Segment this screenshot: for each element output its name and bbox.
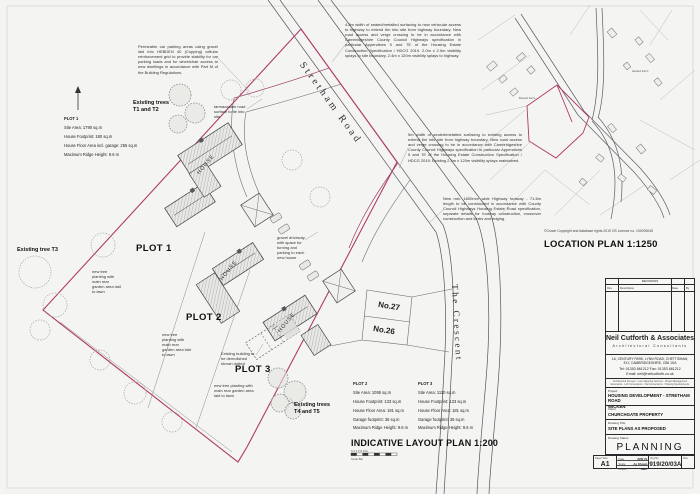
services-line-2: Extensions · Loft Conversions · Flat Con… — [606, 383, 694, 386]
address-section: 1A, CENTURY PARK, LYNN ROAD, CHETTISHAM,… — [606, 354, 694, 378]
drg-no-value: 919/20/03A — [649, 461, 681, 468]
drawing-title-section: Drawing Title SITE PLANS AS PROPOSED — [606, 419, 694, 434]
address-line-1: 1A, CENTURY PARK, LYNN ROAD, CHETTISHAM, — [606, 357, 694, 361]
label-trees-t4-t5: Existing trees T4 and T5 — [294, 402, 332, 415]
location-site-outline — [527, 85, 589, 158]
note-tree-planting-1: new tree planting with main rear garden … — [92, 269, 122, 295]
paper-size-cell: Paper Size A1 — [594, 456, 617, 468]
note-gravel-driveway: gravel driveway with space for turning a… — [277, 235, 307, 261]
note-new-access: 4.8m width of sealed/metalled surfacing … — [345, 22, 461, 58]
label-trees-t1-t2: Existing trees T1 and T2 — [133, 100, 177, 113]
client-label: Client — [608, 407, 616, 411]
revisions-columns: Rev Description Date By — [606, 285, 694, 292]
paper-size-value: A1 — [594, 461, 616, 468]
north-arrow-icon — [75, 86, 81, 110]
drawn-value: NMC — [641, 467, 648, 471]
plot1-house — [164, 121, 243, 227]
location-plan-title: LOCATION PLAN 1:1250 — [544, 239, 658, 250]
label-farm-2: Hazard Farm — [632, 69, 648, 73]
note-tree-planting-2: new tree planting with main rear garden … — [162, 332, 192, 358]
rev-cell: Rev — [682, 456, 694, 468]
company-section: Neil Cutforth & Associates Architectural… — [606, 331, 694, 354]
date-scale-drawn-cell: DateAPR 21 ScaleAs Shown DrawnNMC — [617, 456, 649, 468]
drawing-sheet: Permeable car parking areas using gravel… — [0, 0, 700, 494]
plot1-garage — [241, 193, 274, 227]
neighbour-plot — [330, 289, 452, 352]
project-label: Project — [608, 389, 617, 393]
note-permeable-parking: Permeable car parking areas using gravel… — [138, 44, 218, 75]
scale-bar — [351, 453, 397, 456]
indicative-plan-title: INDICATIVE LAYOUT PLAN 1:200 — [351, 438, 498, 448]
label-plot-1: PLOT 1 — [136, 243, 172, 254]
drawing-status-section: Drawing Status PLANNING — [606, 434, 694, 456]
company-email: Email: neil@neilcutforth.co.uk — [606, 372, 694, 376]
revisions-table: REVISIONS Rev Description Date By — [606, 279, 694, 331]
note-tree-planting-3: new tree planting with main rear garden … — [214, 383, 254, 398]
scale-bar-label: Scale Bar — [351, 457, 363, 461]
company-tel: Tel: 01353 661212 Fax: 01353 661212 — [606, 367, 694, 371]
label-tree-t3: Existing tree T3 — [17, 247, 77, 254]
project-section: Project HOUSING DEVELOPMENT - STRETHAM R… — [606, 387, 694, 405]
company-name: Neil Cutforth & Associates — [606, 335, 694, 342]
note-footway: New min. 1800mm wide Highway footway - 7… — [443, 196, 541, 222]
scale-value: As Shown — [633, 462, 647, 466]
note-existing-access: 5m width of sealed/metalled surfacing to… — [408, 132, 522, 163]
drg-no-cell: Drg No 919/20/03A — [649, 456, 682, 468]
title-block: REVISIONS Rev Description Date By Neil C… — [605, 278, 695, 455]
services-section: Architectural Surveys · Loss Adjusting S… — [606, 378, 694, 387]
client-value: CHURCHGATE PROPERTY — [608, 412, 694, 417]
scale-bar-ticks: 0 2 4 6 8 10m — [351, 449, 368, 453]
plot2-house — [196, 241, 263, 323]
plot1-data-table: PLOT 1 Site Area: 1790 sq.m House Footpr… — [64, 117, 148, 161]
drawing-title-value: SITE PLANS AS PROPOSED — [608, 426, 694, 431]
drawing-title-label: Drawing Title — [608, 421, 625, 425]
os-copyright: ©Crown Copyright and database rights 201… — [544, 229, 653, 233]
plot3-data-table: PLOT 3 Site Area: 1110 sq.m House Footpr… — [418, 382, 480, 435]
location-plan-map — [478, 5, 700, 219]
drawing-status-label: Drawing Status — [608, 436, 628, 440]
label-plot-2: PLOT 2 — [186, 312, 222, 323]
label-plot-3: PLOT 3 — [235, 364, 271, 375]
company-tagline: Architectural Consultants — [606, 344, 694, 348]
label-farm-1: Bowels Farm — [519, 96, 535, 100]
project-value: HOUSING DEVELOPMENT - STRETHAM ROAD — [608, 393, 694, 404]
plot23-garage — [323, 269, 356, 303]
note-tarmacadam: tarmacadam road surface to tie into site — [214, 104, 248, 119]
client-section: Client CHURCHGATE PROPERTY — [606, 405, 694, 419]
plot2-data-table: PLOT 2 Site Area: 1095 sq.m House Footpr… — [353, 382, 415, 435]
address-line-2: ELY, CAMBRIDGESHIRE, CB6 1SA — [606, 361, 694, 365]
date-value: APR 21 — [637, 457, 647, 461]
title-block-info-strip: Paper Size A1 DateAPR 21 ScaleAs Shown D… — [593, 455, 695, 469]
drawing-status-value: PLANNING — [606, 442, 694, 453]
plot3-house — [262, 293, 331, 355]
